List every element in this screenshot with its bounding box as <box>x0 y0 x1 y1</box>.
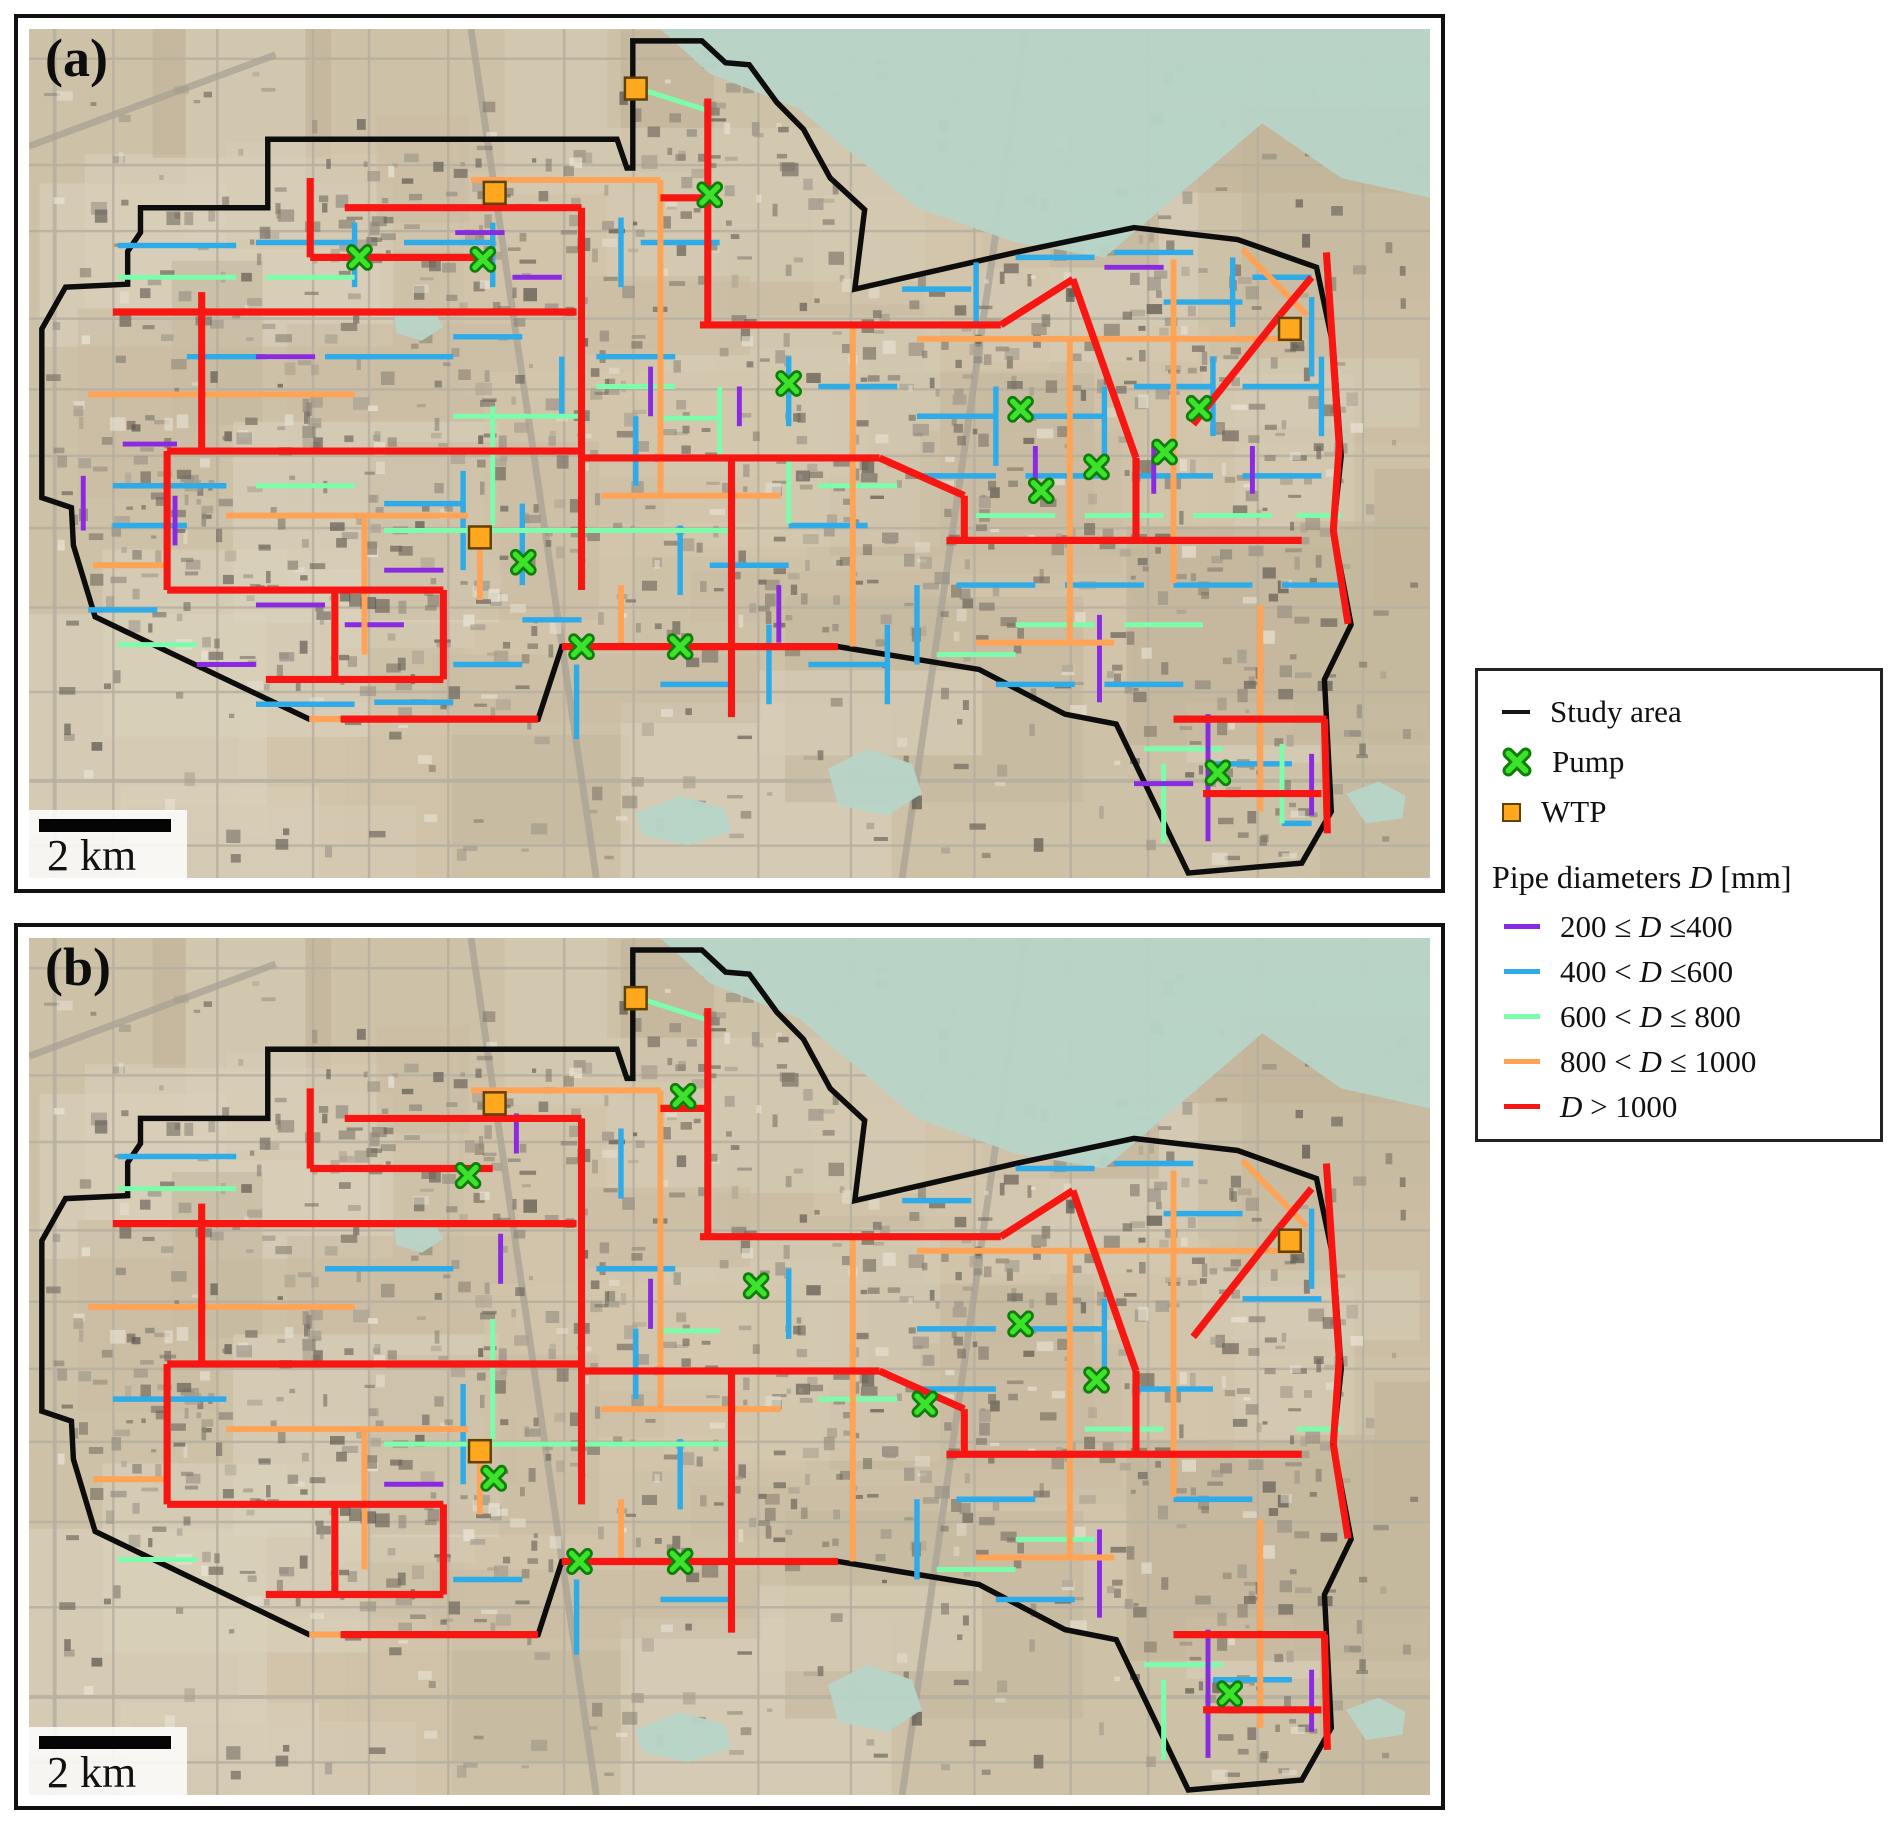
pipe-swatch <box>1504 969 1540 974</box>
legend: Study area Pump WTP Pipe diameters D [mm… <box>1475 668 1883 1142</box>
legend-item-pipe-0: 200 ≤ D ≤400 <box>1478 904 1880 949</box>
legend-item-study-area: Study area <box>1478 687 1880 737</box>
scale-bar-label: 2 km <box>47 834 187 878</box>
map-canvas-b <box>29 938 1430 1795</box>
study-area-line-icon <box>1502 710 1530 714</box>
study-area-label: Study area <box>1550 694 1682 730</box>
pipe-legend-list: 200 ≤ D ≤400400 < D ≤600600 < D ≤ 800800… <box>1478 904 1880 1129</box>
legend-item-pipe-2: 600 < D ≤ 800 <box>1478 994 1880 1039</box>
map-a: (a) 2 km <box>29 29 1430 878</box>
scale-bar-label: 2 km <box>47 1751 187 1795</box>
map-canvas-a <box>29 29 1430 878</box>
pipe-header-prefix: Pipe diameters <box>1492 859 1689 895</box>
pipe-label: D > 1000 <box>1560 1089 1677 1125</box>
pipe-label: 600 < D ≤ 800 <box>1560 999 1741 1035</box>
pipe-swatch <box>1504 1104 1540 1109</box>
scale-bar-b: 2 km <box>29 1727 187 1795</box>
legend-item-pipe-4: D > 1000 <box>1478 1084 1880 1129</box>
map-panel-b: (b) 2 km <box>14 923 1445 1810</box>
pipe-label: 800 < D ≤ 1000 <box>1560 1044 1756 1080</box>
pipe-header-d: D <box>1689 859 1712 895</box>
panel-label-b: (b) <box>45 938 111 997</box>
pipe-swatch <box>1504 1014 1540 1019</box>
pipe-header-suffix: [mm] <box>1712 859 1791 895</box>
pump-icon <box>1502 747 1532 777</box>
legend-item-pipe-1: 400 < D ≤600 <box>1478 949 1880 994</box>
wtp-label: WTP <box>1541 794 1606 830</box>
wtp-icon <box>1502 803 1521 822</box>
pipe-label: 400 < D ≤600 <box>1560 954 1733 990</box>
pump-label: Pump <box>1552 744 1624 780</box>
map-panel-a: (a) 2 km <box>14 14 1445 893</box>
pipe-swatch <box>1504 1059 1540 1064</box>
legend-item-wtp: WTP <box>1478 787 1880 837</box>
scale-bar-a: 2 km <box>29 810 187 878</box>
map-b: (b) 2 km <box>29 938 1430 1795</box>
legend-item-pump: Pump <box>1478 737 1880 787</box>
pipe-swatch <box>1504 924 1540 929</box>
panel-label-a: (a) <box>45 29 108 88</box>
legend-item-pipe-3: 800 < D ≤ 1000 <box>1478 1039 1880 1084</box>
pipe-label: 200 ≤ D ≤400 <box>1560 909 1733 945</box>
pipe-diameters-header: Pipe diameters D [mm] <box>1478 859 1880 896</box>
